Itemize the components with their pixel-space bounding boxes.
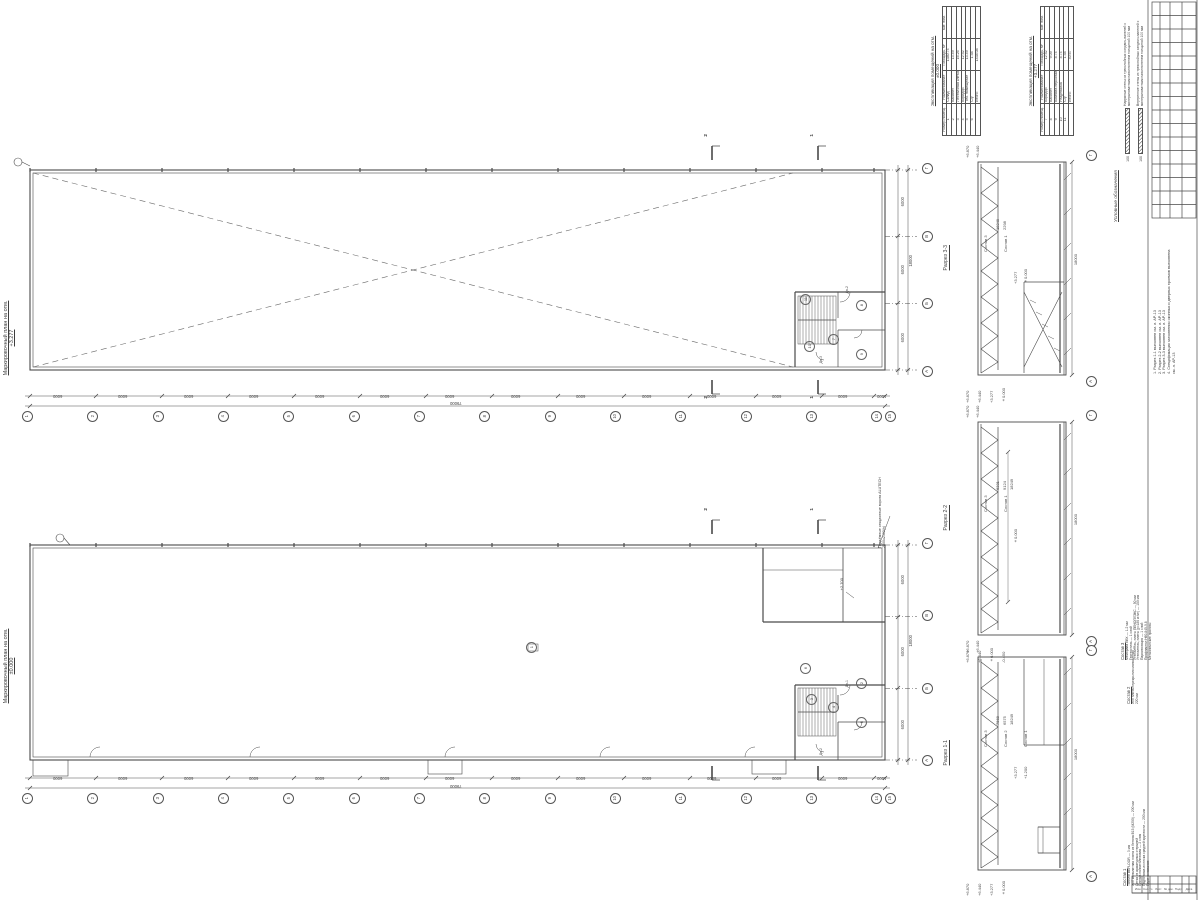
composition-1: Состав 1 Топпинг BEFLOOR — 3 ммЖ/б монол… [1122, 746, 1154, 886]
door-tag: Дв-1 [846, 680, 850, 687]
bay-dim: 6000 [221, 774, 286, 783]
upper-plan-total-dim: 79000 [450, 401, 462, 405]
cut-mark-label: 1 [810, 396, 815, 399]
section-grid-bubble: А [1086, 871, 1097, 882]
section-elevations-mid: ±0.000 [1014, 514, 1050, 544]
grid-bubble: 6 [349, 411, 360, 422]
grid-bubble: Г [922, 163, 933, 174]
grid-bubble: 8 [479, 411, 490, 422]
composition-item: Ж/б плита перекрытия монолитная — 220 мм [1132, 640, 1140, 704]
row-dim: 6000 [899, 543, 907, 616]
elevation-mark: ±0.000 [1014, 514, 1018, 544]
bay-dim: 6000 [810, 392, 875, 401]
table-header: Наименование [942, 71, 947, 103]
door-tag: Дв-3 [820, 356, 824, 363]
title-block-column-label: Кол.уч. [1143, 885, 1153, 892]
room-schedule-table-1: Экспликация помещений на отм. +3.277 Ном… [1028, 6, 1112, 136]
title-block-column-label: Дата [1184, 885, 1194, 892]
elevation-mark: +3.277 [1014, 749, 1018, 779]
row-dim: 6000 [899, 236, 907, 304]
grid-bubble: 11 [675, 793, 686, 804]
lower-plan-title: Маркировочный план на отм. ±0.000 [3, 600, 19, 732]
grid-bubble: Б [922, 683, 933, 694]
elevation-mark: +6.870 [966, 874, 970, 896]
composition-item: Грунт основания [1147, 746, 1151, 886]
grid-bubble: 13 [806, 411, 817, 422]
lower-plan-bay-dims: 6000600060006000600060006000600060006000… [25, 774, 889, 783]
row-dim: 6000 [899, 168, 907, 236]
grid-bubble: 7 [414, 793, 425, 804]
table-level: ±0.000 [935, 64, 940, 78]
section-elevations-top: +6.870+6.440 [966, 388, 1012, 418]
elevation-mark: +1.200 [1024, 749, 1028, 779]
grid-bubble: 4 [218, 411, 229, 422]
elevation-mark: +6.870 [966, 388, 970, 418]
bay-dim: 1000 [875, 774, 889, 783]
door-tag: Дв-2 [820, 748, 824, 755]
grid-bubble: 5 [283, 411, 294, 422]
total-label: Итого: [1069, 71, 1074, 103]
title-block-columns: Изм.Кол.уч.Лист№ док.Подп.Дата [1133, 885, 1194, 892]
grid-bubble: 15 [885, 793, 896, 804]
cut-mark-label: 1 [810, 134, 815, 137]
grid-bubble: Г [922, 538, 933, 549]
grid-bubble: 3 [153, 411, 164, 422]
legend-title: Условные обозначения [1114, 8, 1119, 222]
bay-dim: 6000 [287, 392, 352, 401]
wall-hatch-swatch [1125, 108, 1130, 154]
room-schedule-table-0: Экспликация помещений на отм. ±0.000 Ном… [930, 6, 1020, 136]
grid-bubble: А [922, 755, 933, 766]
composition-ref: Состав 2 [1004, 713, 1008, 747]
bay-dim: 6000 [287, 774, 352, 783]
cut-mark-label: 1 [810, 508, 815, 511]
grid-bubble: В [922, 610, 933, 621]
bay-dim: 6000 [352, 774, 417, 783]
elevation-mark: ±0.000 [1002, 874, 1006, 896]
table-total-row: Итого: 1438.08 [975, 7, 980, 136]
composition-ref: Состав 3 [984, 478, 988, 512]
elevation-mark: +6.870 [966, 623, 970, 653]
section-elevations-mid: +3.277+1.200 [1014, 749, 1050, 779]
upper-plan-bay-dims: 6000600060006000600060006000600060006000… [25, 392, 889, 401]
upper-plan-row-total: 18000 [909, 255, 913, 267]
lower-plan-row-bubbles: ГВБА [921, 538, 933, 766]
section-elevations-mid: +3.277±0.000 [1014, 254, 1050, 284]
title-block-column-label: № док. [1164, 885, 1174, 892]
section-comp-refs: Состав 3Состав 1 [984, 218, 1054, 252]
composition-ref: Состав 1 [1004, 218, 1008, 252]
section-grid-bubble: Г [1086, 645, 1097, 656]
upper-plan-row-bubbles: ГВБА [921, 163, 933, 377]
grid-bubble: 15 [885, 411, 896, 422]
bay-dim: 6000 [417, 392, 482, 401]
title-block-column-label: Подп. [1174, 885, 1184, 892]
composition-ref: Состав 3 [984, 713, 988, 747]
bay-dim: 6000 [679, 774, 744, 783]
elevation-mark: +3.277 [990, 874, 994, 896]
bay-dim: 6000 [614, 392, 679, 401]
bay-dim: 6000 [90, 774, 155, 783]
section-comp-refs: Состав 3Состав 2Состав 1 [984, 713, 1054, 747]
table-header: Номер помещ. [942, 103, 947, 135]
row-dim: 6000 [899, 304, 907, 372]
note-line: 4. Спецификация заполнения оконных и две… [1167, 246, 1176, 374]
level-note: +2.700 [840, 578, 844, 590]
bay-dim: 6000 [156, 392, 221, 401]
wall-thickness-dim: 100 [1126, 156, 1130, 222]
bay-dim: 6000 [744, 774, 809, 783]
grid-bubble: 9 [545, 411, 556, 422]
grid-bubble: 10 [610, 411, 621, 422]
section-elevations-bottom: +6.870+6.440+3.277±0.000 [966, 874, 1076, 896]
bay-dim: 1000 [875, 392, 889, 401]
room-number: 4 [828, 702, 839, 713]
notes-block: 1. Разрез 1-1 выполнен см. л. АР-132. Ра… [1153, 246, 1181, 374]
table-header: Наименование [1040, 71, 1045, 103]
lower-plan-row-total: 18000 [909, 635, 913, 647]
room-number: 2 [856, 678, 867, 689]
grid-bubble: В [922, 231, 933, 242]
grid-bubble: 12 [741, 411, 752, 422]
composition-ref: Состав 3 [984, 218, 988, 252]
grid-bubble: 9 [545, 793, 556, 804]
bay-dim: 6000 [352, 392, 417, 401]
grid-bubble: 2 [87, 793, 98, 804]
section-comp-refs: Состав 3Состав 1 [984, 478, 1054, 512]
bay-dim: 6000 [614, 774, 679, 783]
total-value: 40.67 [1069, 39, 1074, 71]
bay-dim: 6000 [548, 392, 613, 401]
legend-item: 100 Наружные стены из трехслойных сэндви… [1121, 8, 1134, 222]
door-tag: Дв-2 [846, 286, 850, 293]
room-number: 10 [804, 341, 815, 352]
section-label: Разрез 1-1 [944, 740, 949, 765]
grid-bubble: 13 [806, 793, 817, 804]
room-number: 9 [856, 349, 867, 360]
bay-dim: 6000 [810, 774, 875, 783]
cut-mark-label: 2 [704, 396, 709, 399]
table-title: Экспликация помещений на отм. [930, 36, 935, 106]
grid-bubble: 12 [741, 793, 752, 804]
total-value: 1438.08 [975, 39, 980, 71]
room-number: 3 [806, 694, 817, 705]
row-dim: 6000 [899, 616, 907, 689]
bay-dim: 6000 [679, 392, 744, 401]
composition-2: Состав 2 Ж/б плита перекрытия монолитная… [1126, 640, 1146, 704]
bay-dim: 6000 [90, 392, 155, 401]
section-grid-bubble: А [1086, 376, 1097, 387]
composition-ref: Состав 1 [1024, 713, 1028, 747]
elevation-mark: +6.440 [978, 874, 982, 896]
elevation-mark: ±0.000 [1024, 254, 1028, 284]
plan-level-text: ±0.000 [9, 600, 15, 732]
grid-bubble: 4 [218, 793, 229, 804]
room-number: 5 [856, 717, 867, 728]
composition-3: Состав 3 Мембрана ПВХ — 1.2 ммГеотекстил… [1120, 504, 1152, 660]
bay-dim: 6000 [156, 774, 221, 783]
wall-thickness-dim: 100 [1139, 156, 1143, 222]
elevation-mark: +6.440 [976, 623, 980, 653]
section-elevations-top: +6.870+6.440 [966, 623, 1012, 653]
composition-ref: Состав 1 [1004, 478, 1008, 512]
title-block-column-label: Лист [1153, 885, 1163, 892]
upper-plan-row-dims: 600060006000 [899, 168, 907, 372]
room-number: 11 [800, 294, 811, 305]
grid-bubble: 5 [283, 793, 294, 804]
section-label: Разрез 3-3 [944, 245, 949, 270]
bay-dim: 6000 [483, 392, 548, 401]
room-number: 6 [800, 663, 811, 674]
section-total-dim: 18000 [1074, 254, 1078, 265]
legend-item: 100 Внутренние стены из трехслойных сэнд… [1134, 8, 1147, 222]
legend: Условные обозначения 100 Наружные стены … [1114, 8, 1150, 222]
grid-bubble: 14 [871, 793, 882, 804]
cut-mark-label: 2 [704, 508, 709, 511]
bay-dim: 6000 [548, 774, 613, 783]
table-header: Номер помещ. [1040, 103, 1045, 135]
lower-plan-row-dims: 600060006000 [899, 543, 907, 761]
grid-bubble: 1 [22, 793, 33, 804]
room-number: 1 [526, 642, 537, 653]
upper-plan-grid-bubbles: 123456789101112131415 [22, 410, 896, 422]
composition-item: Металлические прогоны [1149, 504, 1153, 660]
table-total-row: Итого: 40.67 [1069, 7, 1074, 136]
grid-bubble: 2 [87, 411, 98, 422]
elevation-mark: +3.277 [1014, 254, 1018, 284]
section-total-dim: 18000 [1074, 514, 1078, 525]
bay-dim: 6000 [744, 392, 809, 401]
upper-plan-title: Маркировочный план на отм. +3.277 [3, 272, 19, 404]
legend-item-text: Внутренние стены из трехслойных сэндвич-… [1137, 8, 1144, 106]
room-number: 8 [856, 300, 867, 311]
grid-bubble: 11 [675, 411, 686, 422]
cut-mark-label: 2 [704, 134, 709, 137]
bay-dim: 6000 [483, 774, 548, 783]
grid-bubble: 6 [349, 793, 360, 804]
wall-hatch-swatch [1138, 108, 1143, 154]
bay-dim: 6000 [417, 774, 482, 783]
gate-annotation: Подъёмные секционные ворота ALUTECH 2500… [878, 476, 904, 548]
grid-bubble: Б [922, 298, 933, 309]
table-level: +3.277 [1033, 64, 1038, 78]
row-dim: 6000 [899, 688, 907, 761]
total-label: Итого: [975, 71, 980, 103]
grid-bubble: 1 [22, 411, 33, 422]
grid-bubble: А [922, 366, 933, 377]
bay-dim: 6000 [221, 392, 286, 401]
grid-bubble: 14 [871, 411, 882, 422]
section-label: Разрез 2-2 [944, 505, 949, 530]
grid-bubble: 8 [479, 793, 490, 804]
lower-plan-grid-bubbles: 123456789101112131415 [22, 792, 896, 804]
table-title: Экспликация помещений на отм. [1028, 36, 1033, 106]
drawing-sheet: Маркировочный план на отм. +3.277 600060… [0, 0, 1200, 900]
section-grid-bubble: Г [1086, 150, 1097, 161]
lower-plan-total-dim: 79000 [450, 784, 462, 788]
grid-bubble: 10 [610, 793, 621, 804]
bay-dim: 6000 [25, 774, 90, 783]
section-total-dim: 18000 [1074, 749, 1078, 760]
plan-level-text: +3.277 [9, 272, 15, 404]
elevation-mark: +6.440 [976, 388, 980, 418]
grid-bubble: 3 [153, 793, 164, 804]
room-number: 7 [828, 334, 839, 345]
legend-item-text: Наружные стены из трехслойных сэндвич-па… [1124, 8, 1131, 106]
bay-dim: 6000 [25, 392, 90, 401]
grid-bubble: 7 [414, 411, 425, 422]
section-grid-bubble: Г [1086, 410, 1097, 421]
title-block-column-label: Изм. [1133, 885, 1143, 892]
